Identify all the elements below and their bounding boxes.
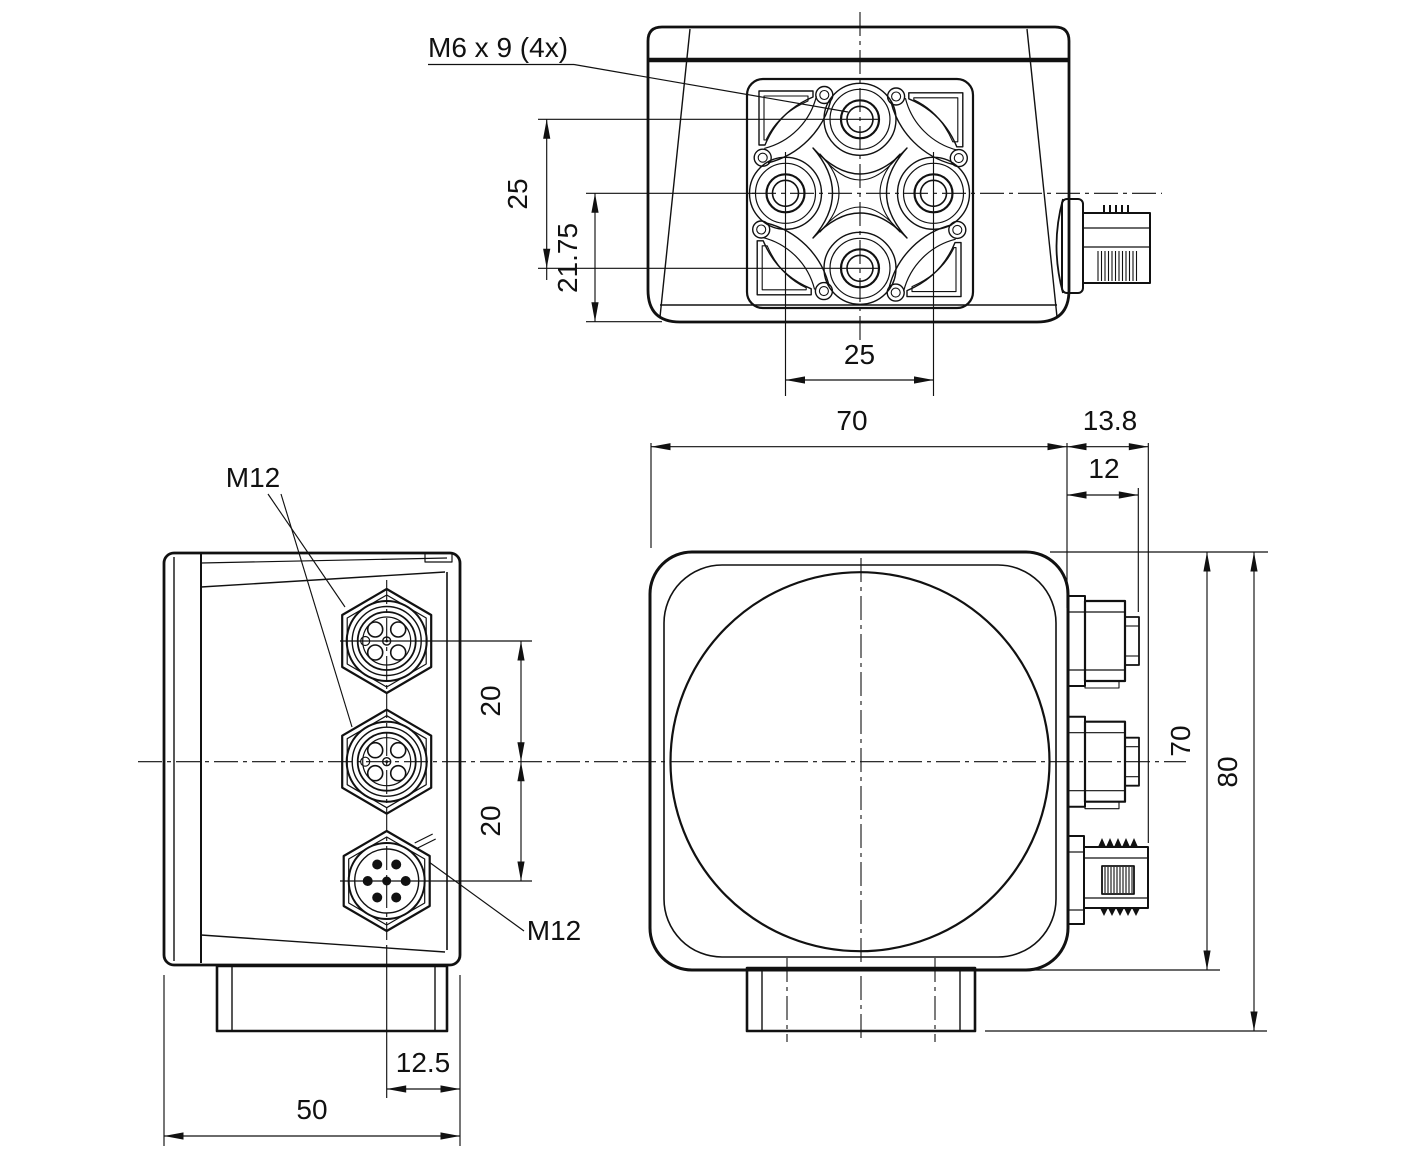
dim-text-70-width: 70 xyxy=(836,405,867,436)
background xyxy=(0,0,1417,1169)
dim-text-12: 12 xyxy=(1088,453,1119,484)
dim-text-20-lower: 20 xyxy=(475,805,506,836)
m12-label-bottom-text: M12 xyxy=(527,915,581,946)
dimension-drawing-canvas: 25 21.75 25 M6 x 9 (4x) xyxy=(0,0,1417,1169)
dim-text-25-horizontal: 25 xyxy=(844,339,875,370)
technical-drawing-page: 25 21.75 25 M6 x 9 (4x) xyxy=(0,0,1417,1169)
dim-text-21-75: 21.75 xyxy=(552,223,583,293)
dim-text-25-vertical: 25 xyxy=(502,178,533,209)
dim-text-12-5: 12.5 xyxy=(396,1047,451,1078)
dim-text-20-upper: 20 xyxy=(475,685,506,716)
m12-label-top-text: M12 xyxy=(226,462,280,493)
dim-text-70-height: 70 xyxy=(1165,725,1196,756)
dim-text-50: 50 xyxy=(296,1094,327,1125)
dim-text-80: 80 xyxy=(1212,756,1243,787)
dim-text-13-8: 13.8 xyxy=(1083,405,1138,436)
thread-note-text: M6 x 9 (4x) xyxy=(428,32,568,63)
